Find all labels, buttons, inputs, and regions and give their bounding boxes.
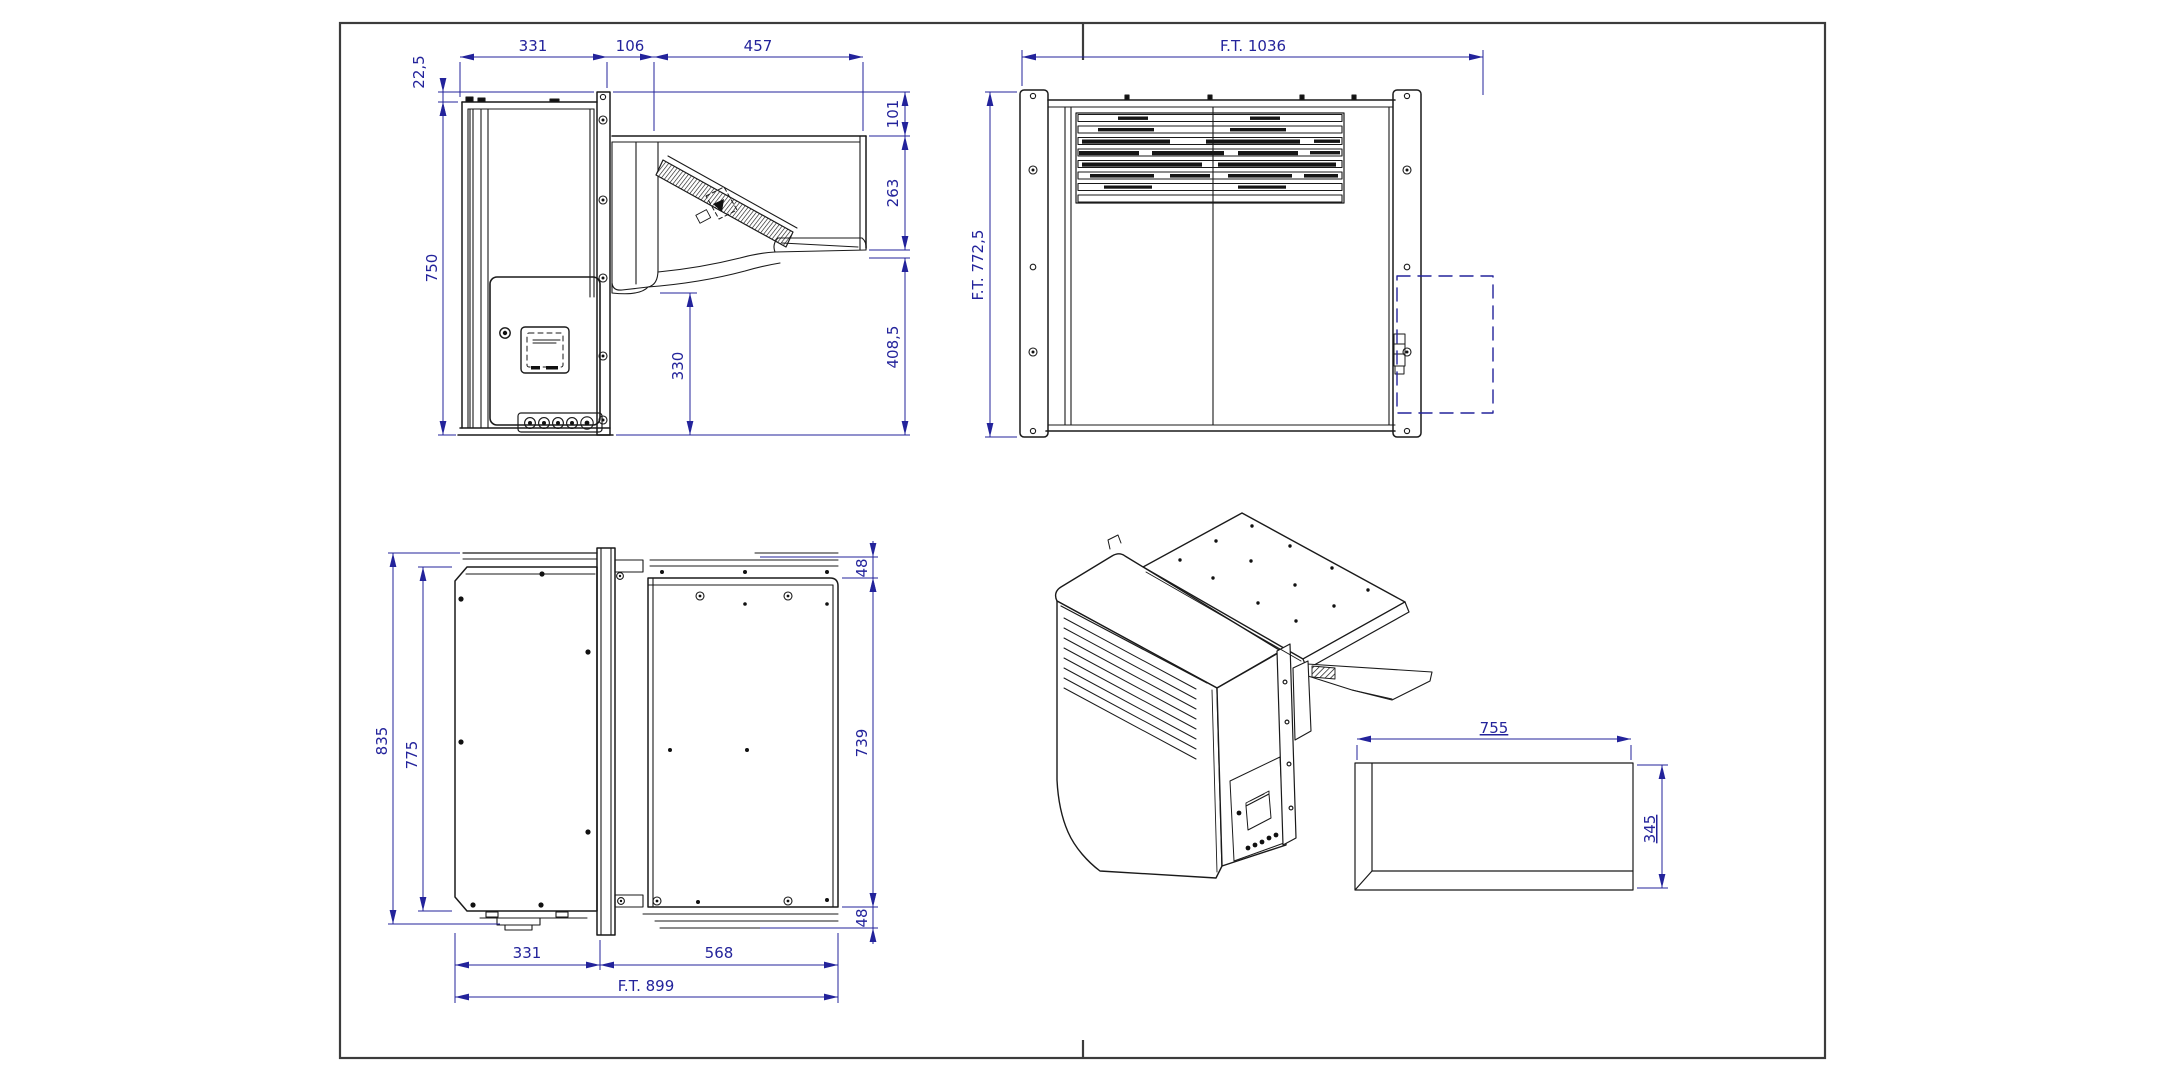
- dim-overall-depth: 835: [373, 727, 391, 756]
- dim-lower-height: 408,5: [884, 326, 902, 369]
- dim-plan-ft-depth: F.T. 899: [618, 977, 675, 995]
- plan-view-dim-labels: 835 775 48 739 48 331 568 F.T. 899: [373, 558, 871, 995]
- dim-opening-height: 345: [1641, 815, 1659, 844]
- wall-opening-dimensions: [1357, 739, 1668, 888]
- dim-indoor-height: 750: [423, 254, 441, 283]
- dim-offset-top: 22,5: [410, 55, 428, 88]
- dim-top-drop: 101: [884, 100, 902, 129]
- dim-panel-width: 739: [853, 729, 871, 758]
- front-view-dim-labels: F.T. 1036 F.T. 772,5: [969, 37, 1286, 300]
- plan-view-dimensions: [388, 541, 878, 1003]
- dim-outdoor-depth: 457: [744, 37, 773, 55]
- fan-blade-shadows: [1079, 117, 1340, 189]
- isometric-view: [1056, 513, 1432, 878]
- dim-opening-width: 755: [1480, 719, 1509, 737]
- dim-bottom-clearance: 330: [669, 352, 687, 381]
- side-view-dim-labels: 331 106 457 22,5 750 330 101 263 408,5: [410, 37, 902, 380]
- dim-ft-width: F.T. 1036: [1220, 37, 1286, 55]
- plan-view: 835 775 48 739 48 331 568 F.T. 899: [373, 541, 878, 1003]
- dim-ft-height: F.T. 772,5: [969, 230, 987, 301]
- plan-screws-right: [653, 570, 829, 905]
- through-wall-phantom: [1397, 276, 1493, 413]
- side-view: 331 106 457 22,5 750 330 101 263 408,5: [410, 37, 910, 435]
- dim-bracket-bottom: 48: [853, 908, 871, 927]
- front-view-dimensions: [985, 50, 1483, 437]
- dim-bracket-top: 48: [853, 558, 871, 577]
- plan-screws-left: [458, 571, 590, 907]
- technical-drawing: 331 106 457 22,5 750 330 101 263 408,5: [0, 0, 2166, 1083]
- sheet-frame: [340, 23, 1825, 1058]
- dim-plan-outdoor-depth: 568: [705, 944, 734, 962]
- front-view: F.T. 1036 F.T. 772,5: [969, 37, 1493, 437]
- dim-plan-indoor-depth: 331: [513, 944, 542, 962]
- dim-indoor-depth: 331: [519, 37, 548, 55]
- dim-condenser-height: 263: [884, 179, 902, 208]
- wall-opening-detail: 755 345: [1355, 719, 1668, 890]
- dim-panel-depth: 775: [403, 741, 421, 770]
- condenser-grille: [1076, 113, 1344, 203]
- dim-wall-thickness: 106: [616, 37, 645, 55]
- drawing-page: 331 106 457 22,5 750 330 101 263 408,5: [0, 0, 2166, 1083]
